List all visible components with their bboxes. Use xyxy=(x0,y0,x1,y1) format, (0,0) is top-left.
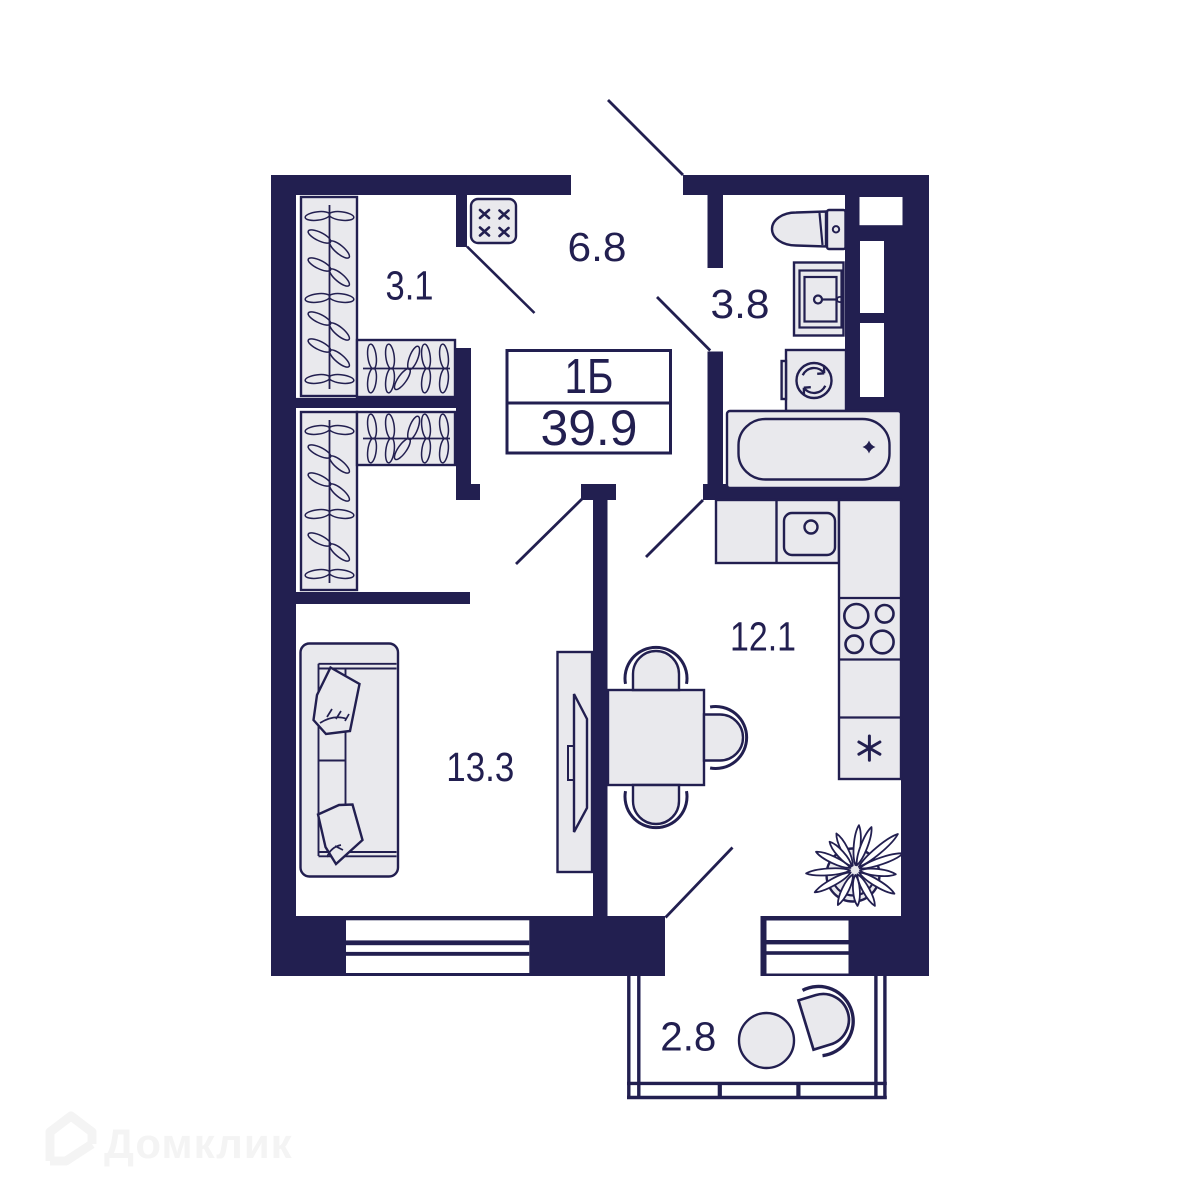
svg-text:1Б: 1Б xyxy=(565,350,614,404)
svg-text:Домклик: Домклик xyxy=(104,1120,293,1167)
svg-text:3.8: 3.8 xyxy=(711,281,770,327)
svg-text:2.8: 2.8 xyxy=(660,1013,716,1059)
svg-text:3.1: 3.1 xyxy=(386,262,434,308)
svg-text:39.9: 39.9 xyxy=(541,400,638,456)
svg-text:6.8: 6.8 xyxy=(568,224,627,270)
svg-text:13.3: 13.3 xyxy=(446,744,514,790)
svg-text:12.1: 12.1 xyxy=(730,613,796,659)
